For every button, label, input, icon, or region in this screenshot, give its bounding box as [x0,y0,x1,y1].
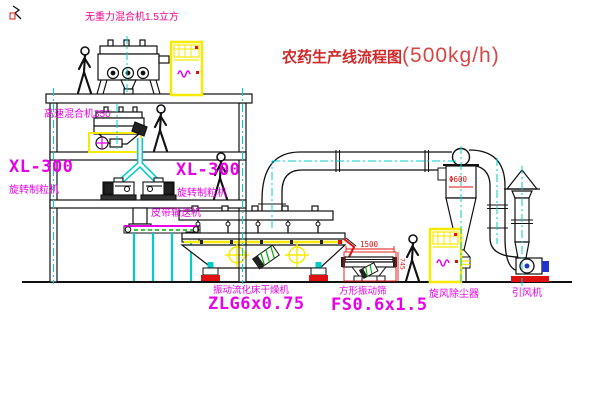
dimension-cyclone-body: Φ600 [449,176,467,184]
person-figure [406,235,419,281]
label-dryer-model: ZLG6x0.75 [208,296,305,313]
granulator-mid [141,178,176,200]
diagram-canvas: 农药生产线流程图(500kg/h) 无重力混合机1.5立方 高速混合机350 X… [0,0,600,403]
page-title: 农药生产线流程图(500kg/h) [282,45,500,66]
label-granulator-model-left: XL-300 [9,159,73,176]
label-sieve-model: FS0.6x1.5 [331,297,428,314]
person-figure [78,47,91,93]
label-high-speed-mixer: 高速混合机350 [44,110,111,120]
corner-mark [10,6,21,19]
label-fan: 引风机 [512,289,542,299]
label-cyclone: 旋风除尘器 [429,290,479,300]
fluid-bed-dryer [179,206,356,281]
exhaust-duct [258,150,452,211]
label-granulator-model-mid: XL-300 [176,162,240,179]
gravity-free-mixer [97,40,171,94]
title-capacity: (500kg/h) [402,44,500,67]
dimension-sieve-height: 745 [399,258,406,270]
control-cabinet-2 [430,229,461,282]
label-belt-conveyor: 皮带输送机 [151,209,201,219]
title-text: 农药生产线流程图 [282,49,402,66]
square-vibrating-sieve [341,246,398,281]
label-granulator-name-mid: 旋转制粒机 [177,189,227,199]
granulator-left [101,178,136,200]
person-figure [154,105,167,151]
label-gravity-mixer: 无重力混合机1.5立方 [85,13,179,23]
control-cabinet-1 [171,42,202,95]
dimension-sieve-length: 1500 [360,241,378,249]
induced-draft-fan [511,258,549,282]
label-granulator-name-left: 旋转制粒机 [9,186,59,196]
